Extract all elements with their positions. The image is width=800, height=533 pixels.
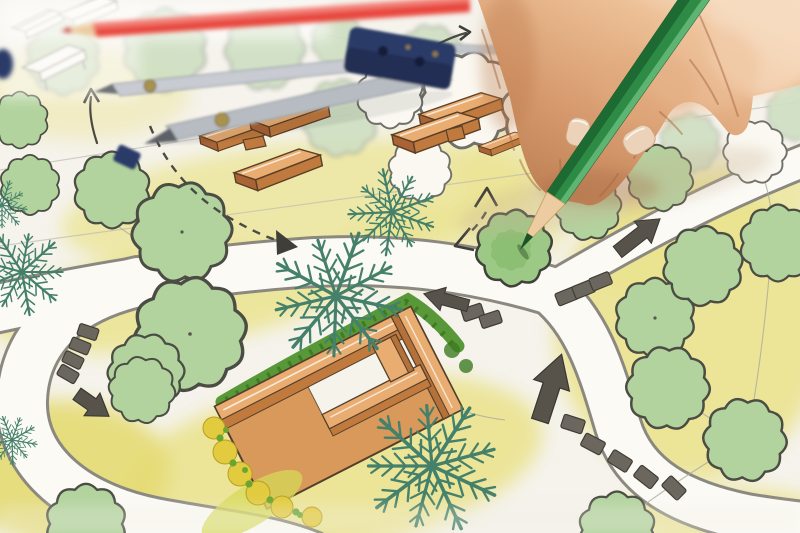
scene — [0, 0, 800, 533]
bed-foliage-dot — [223, 427, 229, 433]
bed-foliage-dot — [242, 467, 248, 473]
bottom-blur-veil — [0, 505, 800, 533]
bed-foliage-dot — [216, 434, 223, 441]
tree-center-dot — [188, 332, 192, 336]
bed-foliage-dot — [245, 480, 252, 487]
bed-foliage-dot — [229, 459, 236, 466]
tree-center-dot — [653, 316, 656, 319]
compass-brass-joint — [215, 113, 229, 127]
photo-canvas — [0, 0, 800, 533]
bed-foliage-dot — [266, 496, 273, 503]
compass-brass-knob — [144, 80, 156, 92]
tree-center-dot — [180, 230, 183, 233]
